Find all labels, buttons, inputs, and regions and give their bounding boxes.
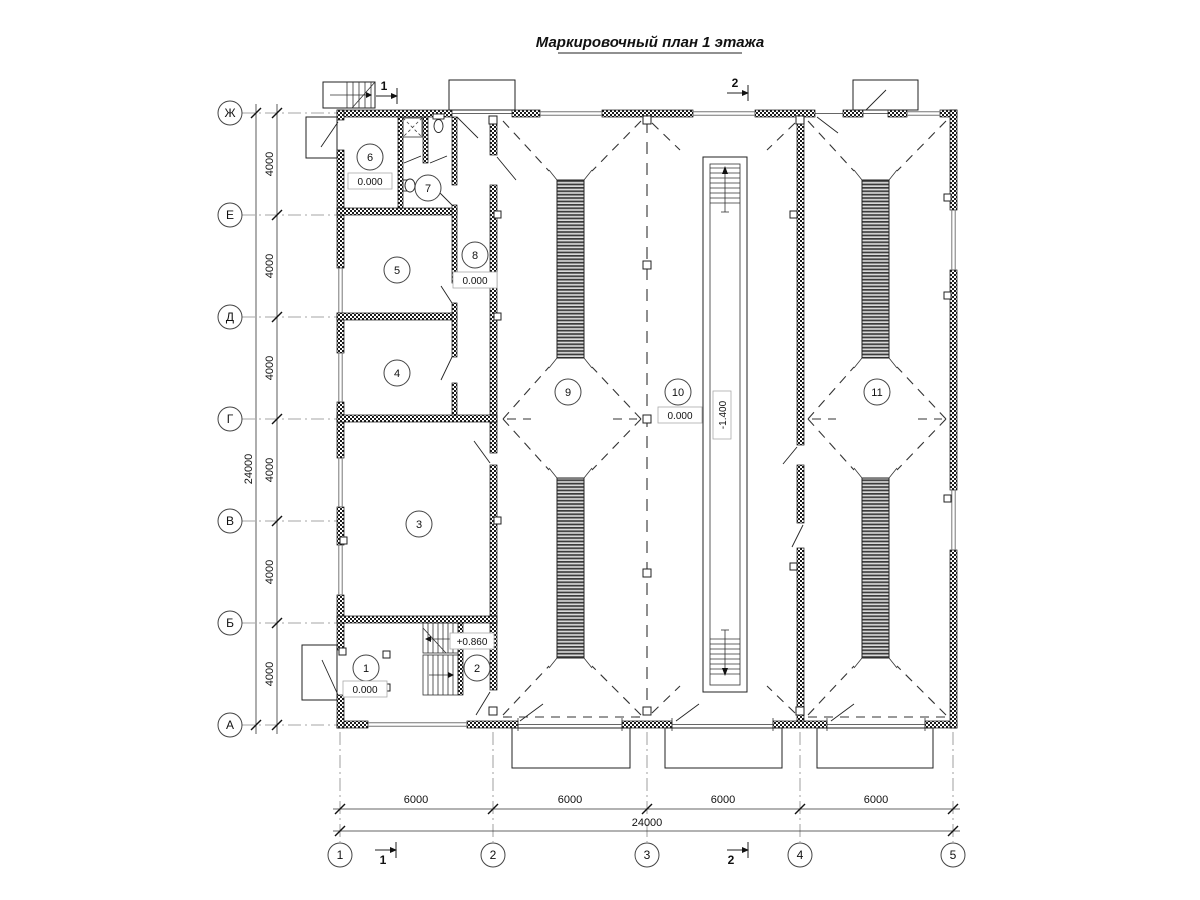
toilet <box>433 114 444 133</box>
shower-tray <box>403 118 422 137</box>
axis-row-label: Д <box>226 310 234 324</box>
axis-col-label: 5 <box>950 848 957 862</box>
escalator-strip <box>557 180 584 358</box>
dim-label: 4000 <box>264 560 276 584</box>
axis-row-label: Е <box>226 208 234 222</box>
section-label: 2 <box>732 76 739 90</box>
entrance-porch <box>512 728 630 768</box>
room-number: 4 <box>394 368 400 380</box>
section-mark-1-bottom: 1 <box>375 842 397 867</box>
dim-label: 6000 <box>558 794 582 806</box>
axis-col-label: 1 <box>337 848 344 862</box>
section-label: 2 <box>728 853 735 867</box>
page-title: Маркировочный план 1 этажа <box>536 34 764 51</box>
sunken-pit: -1.400 <box>703 157 747 692</box>
room-number: 3 <box>416 519 422 531</box>
section-mark-2-top: 2 <box>727 76 749 101</box>
room-number: 1 <box>363 663 369 675</box>
entrance-canopy <box>306 117 337 158</box>
entrance-canopy <box>853 80 918 110</box>
drawing-title: Маркировочный план 1 этажа <box>536 34 764 53</box>
room-number: 9 <box>565 387 571 399</box>
dim-label: 4000 <box>264 254 276 278</box>
room-number: 5 <box>394 265 400 277</box>
axis-col-label: 3 <box>644 848 651 862</box>
entrance-porch <box>817 728 933 768</box>
axis-col-label: 2 <box>490 848 497 862</box>
axis-grid: Ж Е Д Г В Б А 1 2 3 4 5 <box>218 101 965 867</box>
dim-label: 4000 <box>264 458 276 482</box>
escalator-strip <box>557 478 584 658</box>
dim-total-label: 24000 <box>243 454 255 485</box>
escalator-strip <box>862 478 889 658</box>
elevation-value: -1.400 <box>718 400 729 429</box>
elevation-value: 0.000 <box>357 177 382 188</box>
axis-row-label: Ж <box>224 106 235 120</box>
dim-total-label: 24000 <box>632 817 663 829</box>
axis-row-label: В <box>226 514 234 528</box>
elevation-value: 0.000 <box>352 685 377 696</box>
exterior-stair <box>323 82 375 108</box>
axis-col-label: 4 <box>797 848 804 862</box>
dim-label: 6000 <box>711 794 735 806</box>
entrance-canopy <box>449 80 515 110</box>
floor-plan-page: Маркировочный план 1 этажа Ж Е Д Г В Б <box>0 0 1200 900</box>
washbasin <box>403 179 415 192</box>
elevation-value: 0.000 <box>667 411 692 422</box>
entrance-canopy <box>302 645 337 700</box>
room-number: 7 <box>425 183 431 195</box>
room-number: 2 <box>474 663 480 675</box>
axis-row-label: Б <box>226 616 234 630</box>
section-mark-1-top: 1 <box>376 79 398 104</box>
escalator-strip <box>862 180 889 358</box>
section-label: 1 <box>380 853 387 867</box>
section-mark-2-bottom: 2 <box>727 842 749 867</box>
room-number: 8 <box>472 250 478 262</box>
axis-row-label: Г <box>227 412 234 426</box>
floor-plan-drawing: Маркировочный план 1 этажа Ж Е Д Г В Б <box>0 0 1200 900</box>
room-number: 10 <box>672 387 684 399</box>
dim-label: 4000 <box>264 356 276 380</box>
section-label: 1 <box>381 79 388 93</box>
dim-label: 6000 <box>404 794 428 806</box>
elevation-value: +0.860 <box>457 637 488 648</box>
entrance-porch <box>665 728 782 768</box>
room-number: 11 <box>871 387 882 399</box>
elevation-value: 0.000 <box>462 276 487 287</box>
dim-label: 6000 <box>864 794 888 806</box>
canopies-porches <box>302 80 933 768</box>
dim-label: 4000 <box>264 662 276 686</box>
room-number: 6 <box>367 152 373 164</box>
axis-row-label: А <box>226 718 234 732</box>
dim-label: 4000 <box>264 152 276 176</box>
